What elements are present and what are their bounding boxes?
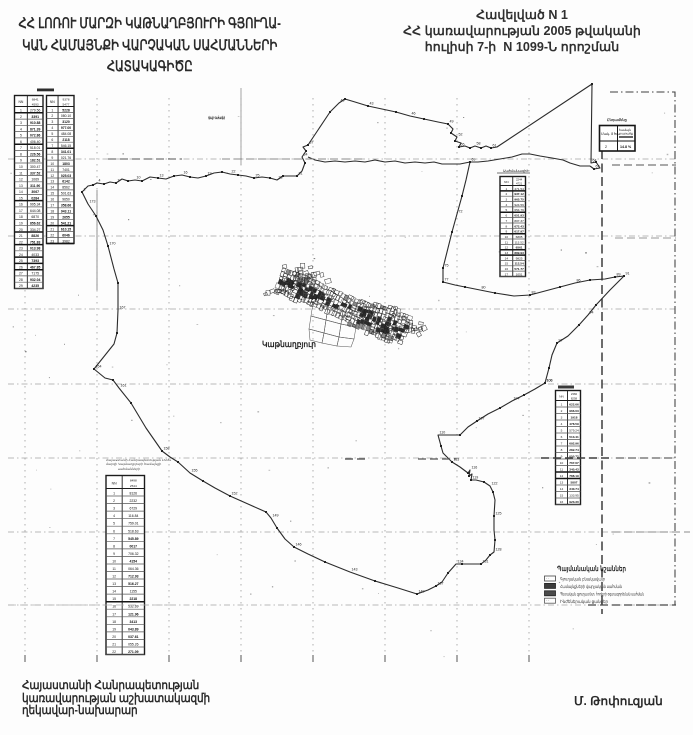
svg-text:15: 15 (505, 262, 509, 266)
svg-text:8562: 8562 (62, 186, 70, 190)
svg-text:923.30: 923.30 (569, 500, 579, 504)
svg-text:16: 16 (505, 267, 509, 271)
svg-text:19: 19 (112, 627, 116, 631)
svg-text:110: 110 (440, 431, 446, 435)
svg-text:9: 9 (506, 230, 508, 234)
svg-text:161: 161 (121, 384, 127, 388)
svg-text:149: 149 (273, 514, 279, 518)
svg-text:9378: 9378 (63, 98, 70, 102)
svg-text:3: 3 (561, 416, 563, 420)
svg-text:Պետական գյուղատնտ. հողերի օգտա: Պետական գյուղատնտ. հողերի օգտագործման սա… (560, 591, 644, 596)
svg-text:2: 2 (561, 409, 563, 413)
svg-text:043.89: 043.89 (128, 627, 138, 631)
svg-text:55: 55 (461, 143, 465, 147)
svg-text:158: 158 (164, 447, 170, 451)
svg-text:NN: NN (504, 180, 508, 184)
svg-text:807.37: 807.37 (514, 219, 524, 223)
svg-text:134: 134 (458, 560, 464, 564)
svg-text:155: 155 (192, 469, 198, 473)
svg-text:622.66: 622.66 (569, 403, 579, 407)
svg-text:6046: 6046 (62, 233, 70, 237)
svg-text:279.56: 279.56 (30, 109, 40, 113)
svg-text:167: 167 (120, 306, 126, 310)
svg-text:143: 143 (352, 568, 358, 572)
svg-text:25: 25 (19, 259, 23, 263)
svg-text:545.89: 545.89 (128, 537, 138, 541)
svg-text:501.63: 501.63 (61, 192, 71, 196)
svg-text:5807: 5807 (571, 481, 578, 485)
svg-text:8: 8 (51, 150, 53, 154)
svg-text:358.66: 358.66 (61, 204, 71, 208)
svg-text:4: 4 (20, 127, 22, 131)
svg-text:29: 29 (19, 284, 23, 288)
svg-text:24: 24 (19, 253, 23, 257)
svg-text:692.96: 692.96 (569, 442, 579, 446)
svg-text:937.12: 937.12 (514, 192, 524, 196)
svg-text:1: 1 (20, 109, 22, 113)
svg-text:8498: 8498 (130, 478, 137, 482)
svg-text:9: 9 (113, 552, 115, 556)
svg-text:932.04: 932.04 (30, 278, 40, 282)
svg-text:Գյուղական բնակավայր: Գյուղական բնակավայր (560, 577, 605, 582)
svg-text:334.27: 334.27 (30, 228, 40, 232)
svg-text:140: 140 (419, 590, 425, 594)
svg-text:133.95: 133.95 (569, 494, 579, 498)
svg-text:889.93: 889.93 (514, 251, 524, 255)
svg-text:մարզի Կաթնաղբյուրի համայնքի: մարզի Կաթնաղբյուրի համայնքի (106, 462, 161, 466)
svg-text:NN: NN (50, 100, 55, 104)
svg-text:484.08: 484.08 (61, 132, 71, 136)
svg-text:13: 13 (19, 184, 23, 188)
svg-text:021.76: 021.76 (61, 156, 71, 160)
svg-text:112.54: 112.54 (514, 262, 524, 266)
svg-text:516.27: 516.27 (128, 582, 138, 586)
svg-text:3413: 3413 (130, 620, 138, 624)
svg-text:759.01: 759.01 (128, 522, 138, 526)
svg-text:654.79: 654.79 (514, 208, 524, 212)
svg-text:20: 20 (50, 221, 54, 225)
svg-text:58: 58 (477, 142, 481, 146)
svg-text:1: 1 (51, 108, 53, 112)
svg-text:7: 7 (51, 144, 53, 148)
svg-text:75: 75 (445, 264, 449, 268)
svg-text:116: 116 (472, 466, 478, 470)
svg-text:4721: 4721 (516, 182, 523, 186)
svg-text:788.19: 788.19 (569, 474, 579, 478)
svg-text:0284: 0284 (31, 196, 39, 200)
svg-text:3982: 3982 (62, 239, 70, 243)
svg-text:10: 10 (560, 461, 564, 465)
svg-text:467.85: 467.85 (30, 265, 40, 269)
svg-text:8826: 8826 (31, 234, 39, 238)
svg-text:11: 11 (19, 171, 23, 175)
svg-text:Պայմանական նշաններ: Պայմանական նշաններ (557, 564, 626, 573)
svg-text:513.41: 513.41 (569, 435, 579, 439)
svg-text:518.01: 518.01 (30, 146, 40, 150)
svg-text:5: 5 (20, 134, 22, 138)
svg-text:43: 43 (370, 102, 374, 106)
svg-text:2232: 2232 (130, 499, 138, 503)
svg-text:Ընդամենը: Ընդամենը (607, 117, 628, 122)
svg-text:311.90: 311.90 (30, 184, 40, 188)
svg-text:8: 8 (561, 448, 563, 452)
svg-text:2544: 2544 (130, 484, 137, 488)
svg-text:966.03: 966.03 (569, 409, 579, 413)
svg-text:7401: 7401 (62, 168, 70, 172)
svg-text:037.61: 037.61 (128, 635, 138, 639)
svg-text:104: 104 (514, 397, 520, 401)
svg-text:4033: 4033 (31, 253, 39, 257)
svg-text:4: 4 (506, 203, 508, 207)
svg-text:8: 8 (506, 224, 508, 228)
svg-text:23: 23 (50, 239, 54, 243)
svg-text:7393: 7393 (31, 259, 39, 263)
svg-text:28: 28 (19, 278, 23, 282)
svg-text:6841: 6841 (32, 98, 39, 102)
svg-text:013.98: 013.98 (30, 247, 40, 251)
svg-text:4235: 4235 (31, 284, 39, 288)
svg-text:7: 7 (118, 179, 120, 183)
svg-text:706.32: 706.32 (128, 552, 138, 556)
svg-text:965.75: 965.75 (514, 198, 524, 202)
svg-text:3: 3 (506, 198, 508, 202)
svg-text:Համայնքների վարչական սահման: Համայնքների վարչական սահման (560, 584, 622, 589)
svg-text:8: 8 (20, 153, 22, 157)
svg-text:170: 170 (110, 242, 116, 246)
svg-text:6: 6 (561, 435, 563, 439)
svg-text:152: 152 (232, 492, 238, 496)
svg-text:19: 19 (50, 216, 54, 220)
svg-text:22: 22 (19, 240, 23, 244)
svg-text:80: 80 (482, 286, 486, 290)
svg-text:11: 11 (505, 240, 508, 244)
svg-text:12: 12 (19, 178, 23, 182)
svg-text:173: 173 (90, 200, 96, 204)
svg-text:40: 40 (341, 99, 345, 103)
svg-text:22: 22 (112, 650, 116, 654)
svg-text:856.62: 856.62 (30, 222, 40, 226)
svg-text:2: 2 (605, 145, 607, 149)
svg-text:924.59: 924.59 (514, 203, 524, 207)
svg-text:18: 18 (19, 215, 23, 219)
svg-text:46: 46 (412, 112, 416, 116)
svg-text:9650: 9650 (62, 198, 70, 202)
svg-text:16: 16 (112, 605, 116, 609)
svg-text:131: 131 (483, 560, 489, 564)
svg-text:2655: 2655 (62, 216, 70, 220)
svg-text:4: 4 (113, 514, 115, 518)
svg-text:1: 1 (84, 188, 86, 192)
svg-text:025.03: 025.03 (61, 174, 71, 178)
svg-text:5228: 5228 (62, 108, 70, 112)
svg-text:271.09: 271.09 (128, 650, 138, 654)
svg-text:Սահմանագիծ: Սահմանագիծ (503, 169, 528, 173)
svg-text:1051: 1051 (516, 272, 523, 276)
svg-text:121.96: 121.96 (128, 612, 138, 616)
svg-text:282.74: 282.74 (569, 448, 579, 452)
svg-text:13: 13 (112, 582, 116, 586)
svg-text:89: 89 (617, 273, 621, 277)
svg-text:1069: 1069 (31, 178, 39, 182)
svg-text:3: 3 (51, 120, 53, 124)
svg-text:9: 9 (51, 156, 53, 160)
svg-text:871.39: 871.39 (30, 127, 40, 131)
svg-text:2218: 2218 (130, 597, 138, 601)
svg-text:751.83: 751.83 (30, 240, 40, 244)
svg-text:2118: 2118 (62, 138, 69, 142)
svg-text:17: 17 (50, 204, 54, 208)
svg-text:16: 16 (19, 203, 23, 207)
svg-text:5: 5 (113, 522, 115, 526)
svg-text:26: 26 (19, 265, 23, 269)
svg-text:6: 6 (113, 529, 115, 533)
svg-text:0017: 0017 (130, 544, 138, 548)
svg-text:6729: 6729 (130, 507, 138, 511)
svg-text:77: 77 (445, 278, 449, 282)
svg-text:6870: 6870 (31, 215, 39, 219)
svg-text:69: 69 (472, 158, 476, 162)
svg-text:6561: 6561 (516, 246, 523, 250)
svg-text:19: 19 (19, 222, 23, 226)
svg-text:61: 61 (493, 144, 497, 148)
svg-text:· ·: · · (546, 577, 549, 581)
svg-text:182.51: 182.51 (30, 159, 40, 163)
svg-text:28: 28 (279, 176, 283, 180)
svg-text:12: 12 (50, 174, 54, 178)
svg-text:4: 4 (561, 422, 563, 426)
svg-text:14: 14 (112, 590, 116, 594)
svg-text:10: 10 (19, 165, 23, 169)
svg-text:651.93: 651.93 (514, 214, 524, 218)
svg-text:18: 18 (50, 210, 54, 214)
svg-text:2: 2 (506, 192, 508, 196)
svg-text:101: 101 (547, 379, 553, 383)
svg-text:478.59: 478.59 (569, 422, 579, 426)
svg-text:NN: NN (18, 100, 23, 104)
svg-text:3067: 3067 (31, 190, 39, 194)
svg-text:9: 9 (20, 159, 22, 163)
svg-text:3: 3 (20, 121, 22, 125)
svg-text:սահմանների: սահմանների (118, 467, 140, 471)
svg-text:12: 12 (560, 474, 564, 478)
svg-text:83: 83 (532, 291, 536, 295)
svg-text:16: 16 (50, 198, 54, 202)
svg-text:11: 11 (112, 567, 116, 571)
svg-text:2: 2 (20, 115, 22, 119)
svg-text:340.43: 340.43 (569, 468, 579, 472)
svg-text:14: 14 (19, 190, 23, 194)
svg-text:37: 37 (310, 141, 314, 145)
svg-text:5: 5 (506, 208, 508, 212)
svg-text:146: 146 (296, 543, 302, 547)
svg-text:977.00: 977.00 (61, 126, 71, 130)
svg-text:10: 10 (50, 162, 54, 166)
svg-text:տարածք: տարածք (619, 132, 633, 136)
svg-text:13: 13 (505, 251, 509, 255)
svg-text:4593: 4593 (32, 102, 39, 106)
svg-text:22: 22 (50, 233, 54, 237)
svg-text:1918: 1918 (571, 416, 578, 420)
svg-text:8: 8 (113, 544, 115, 548)
svg-text:NN: NN (559, 395, 563, 399)
svg-text:6: 6 (506, 214, 508, 218)
svg-text:128: 128 (496, 548, 502, 552)
svg-text:Կաթնաղբյուր: Կաթնաղբյուր (262, 339, 317, 350)
svg-text:055.26: 055.26 (128, 642, 138, 646)
svg-text:672.43: 672.43 (514, 224, 524, 228)
svg-text:21: 21 (50, 227, 54, 231)
svg-text:16: 16 (560, 500, 564, 504)
svg-text:340.74: 340.74 (569, 487, 579, 491)
svg-text:119: 119 (473, 476, 479, 480)
svg-text:14: 14 (560, 487, 564, 491)
svg-text:571.77: 571.77 (514, 267, 524, 271)
svg-text:341.01: 341.01 (61, 150, 71, 154)
svg-text:137: 137 (438, 582, 444, 586)
svg-text:97: 97 (559, 339, 563, 343)
svg-text:6142: 6142 (62, 180, 70, 184)
svg-text:064.36: 064.36 (128, 567, 138, 571)
svg-text:6: 6 (20, 140, 22, 144)
svg-text:17: 17 (505, 272, 509, 276)
svg-text:113.52: 113.52 (514, 240, 524, 244)
svg-text:13: 13 (50, 180, 54, 184)
svg-text:6805: 6805 (516, 235, 523, 239)
svg-text:072.86: 072.86 (30, 134, 40, 138)
svg-text:518.63: 518.63 (128, 529, 138, 533)
svg-text:471.54: 471.54 (514, 187, 524, 191)
svg-text:5: 5 (51, 132, 53, 136)
svg-text:1: 1 (561, 403, 563, 407)
svg-text:· ·: · · (546, 599, 549, 603)
svg-text:1: 1 (506, 187, 508, 191)
svg-text:3120: 3120 (62, 120, 70, 124)
svg-text:7: 7 (20, 146, 22, 150)
svg-text:7: 7 (506, 219, 508, 223)
svg-text:3391: 3391 (31, 115, 39, 119)
svg-text:579.24: 579.24 (569, 429, 579, 433)
svg-text:9825: 9825 (516, 256, 523, 260)
svg-text:դեպի Վահագնի: դեպի Վահագնի (208, 115, 225, 120)
svg-text:541.21: 541.21 (61, 221, 71, 225)
svg-text:14.8 %: 14.8 % (620, 145, 632, 149)
svg-text:122: 122 (492, 482, 498, 486)
svg-text:25: 25 (256, 174, 260, 178)
svg-text:18: 18 (112, 620, 116, 624)
svg-text:943.11: 943.11 (61, 210, 71, 214)
svg-text:Ինժեներական ցանցեր: Ինժեներական ցանցեր (560, 599, 608, 604)
svg-text:406.40: 406.40 (30, 140, 40, 144)
svg-text:17: 17 (112, 612, 116, 616)
svg-text:5477: 5477 (63, 102, 70, 106)
svg-text:4: 4 (51, 126, 53, 130)
svg-text:7: 7 (561, 442, 563, 446)
svg-text:11: 11 (560, 468, 563, 472)
svg-text:91: 91 (626, 272, 630, 276)
svg-text:10: 10 (112, 559, 116, 563)
svg-text:31: 31 (299, 172, 303, 176)
svg-text:20: 20 (19, 228, 23, 232)
svg-text:12: 12 (505, 246, 509, 250)
svg-text:767.67: 767.67 (569, 461, 579, 465)
svg-text:16: 16 (184, 171, 188, 175)
svg-text:13: 13 (560, 481, 564, 485)
svg-text:19: 19 (208, 172, 212, 176)
svg-text:2: 2 (113, 499, 115, 503)
svg-text:116.84: 116.84 (128, 514, 138, 518)
svg-text:22: 22 (232, 170, 236, 174)
svg-text:67: 67 (596, 165, 600, 169)
svg-text:1803: 1803 (62, 162, 70, 166)
svg-text:712.93: 712.93 (128, 575, 138, 579)
svg-text:107: 107 (479, 417, 485, 421)
svg-text:11: 11 (51, 168, 55, 172)
svg-text:644.08: 644.08 (30, 209, 40, 213)
svg-text:617.97: 617.97 (514, 230, 524, 234)
svg-text:226.56: 226.56 (30, 153, 40, 157)
svg-text:49: 49 (450, 120, 454, 124)
svg-text:8258: 8258 (571, 397, 578, 401)
svg-text:4: 4 (99, 179, 101, 183)
svg-text:080.10: 080.10 (61, 114, 71, 118)
svg-text:3: 3 (113, 507, 115, 511)
svg-text:86: 86 (577, 279, 581, 283)
svg-text:10: 10 (505, 235, 509, 239)
svg-text:94: 94 (590, 311, 594, 315)
svg-text:27: 27 (19, 272, 23, 276)
svg-text:21: 21 (112, 642, 116, 646)
svg-text:1155: 1155 (130, 590, 137, 594)
svg-text:21: 21 (19, 234, 23, 238)
svg-text:10: 10 (137, 176, 141, 180)
svg-text:300.47: 300.47 (30, 165, 40, 169)
svg-text:164: 164 (96, 365, 102, 369)
svg-text:2382: 2382 (571, 392, 578, 396)
svg-text:20: 20 (112, 635, 116, 639)
svg-text:910.88: 910.88 (30, 121, 40, 125)
svg-text:12: 12 (112, 575, 116, 579)
svg-text:4154: 4154 (130, 559, 138, 563)
svg-text:6: 6 (51, 138, 53, 142)
svg-text:64: 64 (593, 159, 597, 163)
svg-text:15: 15 (112, 597, 116, 601)
svg-text:15: 15 (560, 494, 564, 498)
svg-text:NN: NN (112, 482, 117, 486)
svg-text:337.52: 337.52 (30, 171, 40, 175)
svg-text:7: 7 (113, 537, 115, 541)
svg-text:52: 52 (459, 133, 463, 137)
svg-text:15: 15 (19, 196, 23, 200)
svg-text:995.34: 995.34 (30, 203, 40, 207)
svg-text:23: 23 (19, 247, 23, 251)
svg-text:Մակ․ 8 հա: Մակ․ 8 հա (601, 132, 620, 136)
svg-text:8126: 8126 (130, 492, 138, 496)
svg-text:546.15: 546.15 (61, 144, 71, 148)
svg-text:72: 72 (459, 210, 463, 214)
svg-text:14: 14 (505, 256, 509, 260)
svg-text:14: 14 (50, 186, 54, 190)
svg-text:1: 1 (113, 492, 115, 496)
svg-text:17: 17 (19, 209, 23, 213)
svg-text:125: 125 (496, 512, 502, 516)
svg-text:5: 5 (561, 429, 563, 433)
svg-text:2: 2 (51, 114, 53, 118)
svg-text:13: 13 (160, 174, 164, 178)
svg-text:15: 15 (50, 192, 54, 196)
svg-text:610.15: 610.15 (61, 227, 71, 231)
svg-text:34: 34 (304, 153, 308, 157)
svg-text:7175: 7175 (31, 272, 39, 276)
